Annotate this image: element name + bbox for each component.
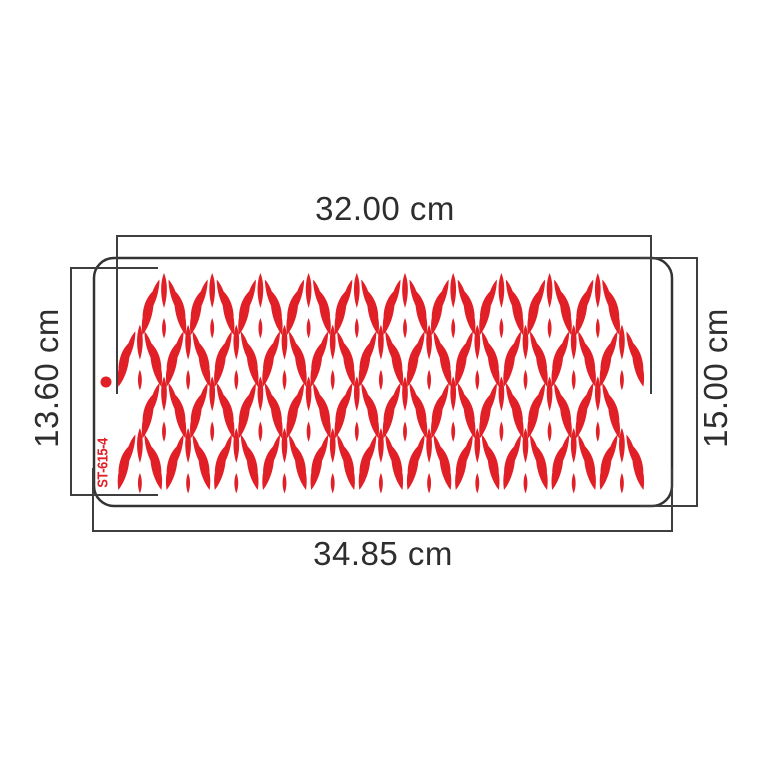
diagram-graphics (0, 0, 768, 768)
dim-left-height-label: 13.60 cm (29, 298, 65, 458)
dim-top-width-label: 32.00 cm (285, 191, 485, 227)
diagram-canvas: 32.00 cm 34.85 cm 13.60 cm 15.00 cm ST-6… (0, 0, 768, 768)
dim-right-height-label: 15.00 cm (698, 298, 734, 458)
product-code-label: ST-615-4 (95, 426, 110, 500)
registration-dot (101, 377, 112, 388)
dim-bottom-width-label: 34.85 cm (283, 536, 483, 572)
